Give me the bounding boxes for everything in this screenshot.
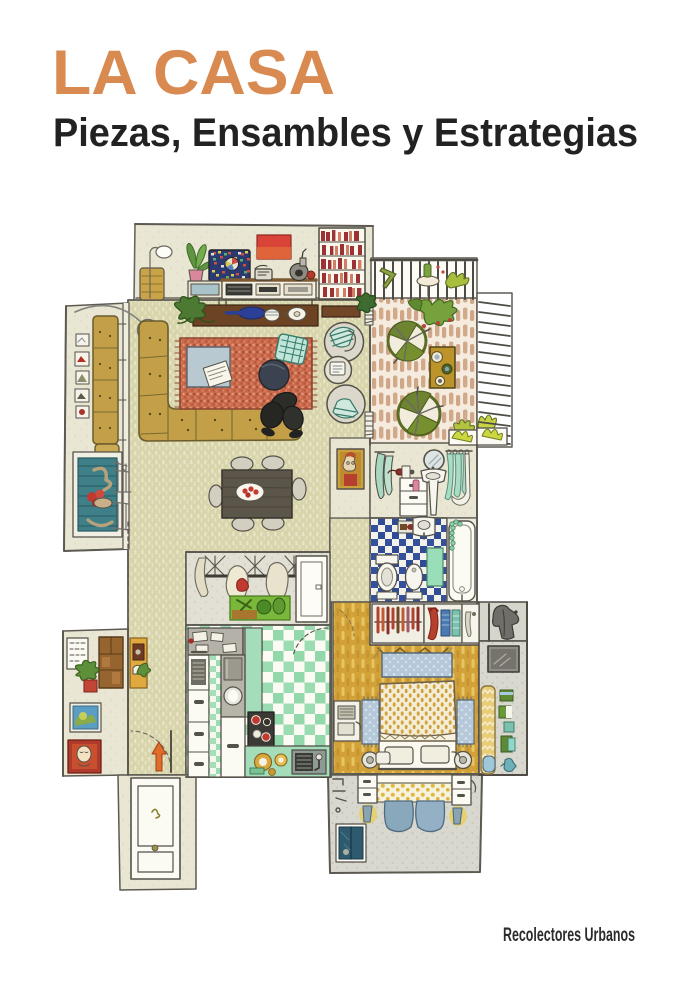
svg-text:Recolectores Urbanos: Recolectores Urbanos bbox=[503, 925, 635, 946]
svg-text:Piezas, Ensambles y Estrategia: Piezas, Ensambles y Estrategias bbox=[53, 111, 638, 155]
svg-text:LA CASA: LA CASA bbox=[52, 38, 335, 108]
